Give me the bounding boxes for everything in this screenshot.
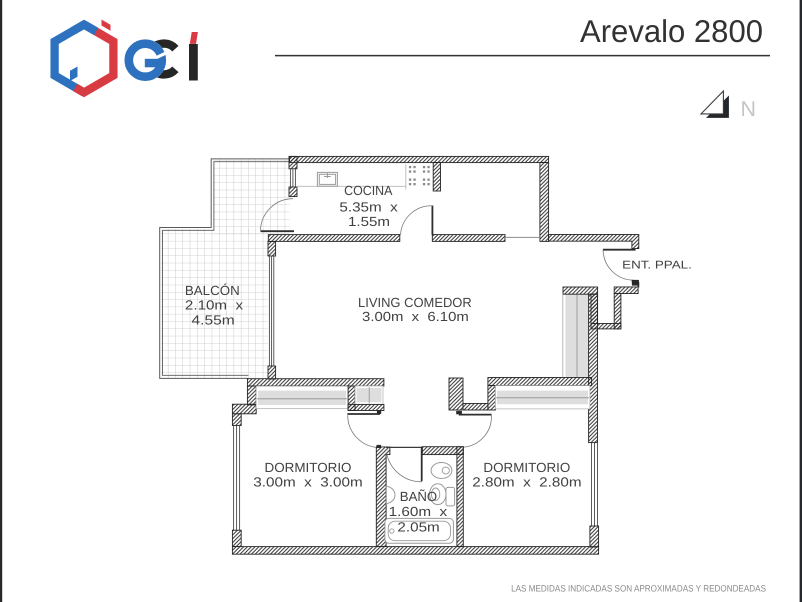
svg-text:1.60m x: 1.60m x — [389, 504, 448, 519]
svg-text:2.05m: 2.05m — [397, 520, 439, 535]
svg-text:LAS MEDIDAS INDICADAS SON APRO: LAS MEDIDAS INDICADAS SON APROXIMADAS Y … — [511, 583, 766, 593]
svg-text:3.00m x 3.00m: 3.00m x 3.00m — [253, 474, 362, 489]
svg-text:N: N — [741, 97, 757, 121]
svg-text:Arevalo 2800: Arevalo 2800 — [580, 13, 763, 49]
svg-text:DORMITORIO: DORMITORIO — [265, 460, 352, 475]
svg-text:COCINA: COCINA — [344, 183, 392, 198]
svg-text:3.00m x 6.10m: 3.00m x 6.10m — [362, 309, 469, 324]
svg-text:DORMITORIO: DORMITORIO — [483, 460, 570, 475]
svg-text:LIVING COMEDOR: LIVING COMEDOR — [358, 295, 472, 310]
svg-text:5.35m x: 5.35m x — [339, 200, 398, 215]
svg-text:ENT. PPAL.: ENT. PPAL. — [622, 259, 692, 271]
svg-text:2.80m x 2.80m: 2.80m x 2.80m — [472, 474, 581, 489]
svg-text:2.10m x: 2.10m x — [185, 298, 244, 313]
svg-text:1.55m: 1.55m — [348, 214, 390, 229]
svg-text:4.55m: 4.55m — [192, 313, 235, 328]
svg-text:BALCÓN: BALCÓN — [185, 283, 240, 298]
svg-text:BAÑO: BAÑO — [400, 489, 437, 504]
